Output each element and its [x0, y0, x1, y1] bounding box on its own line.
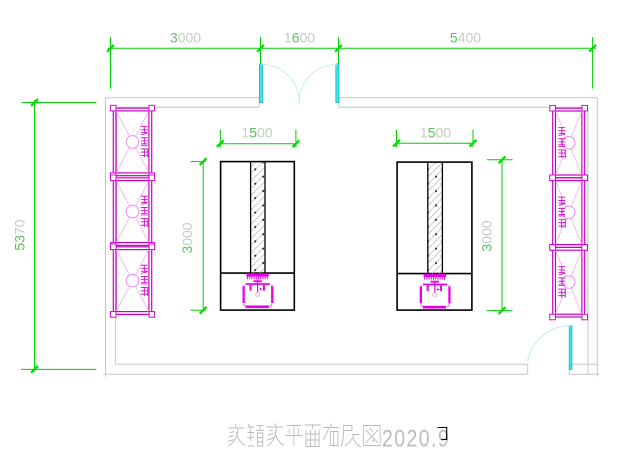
- svg-text:1500: 1500: [420, 125, 451, 141]
- svg-text:1600: 1600: [284, 30, 315, 46]
- svg-text:1500: 1500: [241, 125, 272, 141]
- svg-text:3000: 3000: [170, 30, 201, 46]
- svg-text:2020.9: 2020.9: [382, 424, 450, 452]
- svg-text:3000: 3000: [479, 220, 495, 251]
- svg-text:5400: 5400: [450, 30, 481, 46]
- svg-text:5370: 5370: [12, 219, 28, 250]
- svg-text:3000: 3000: [179, 222, 195, 253]
